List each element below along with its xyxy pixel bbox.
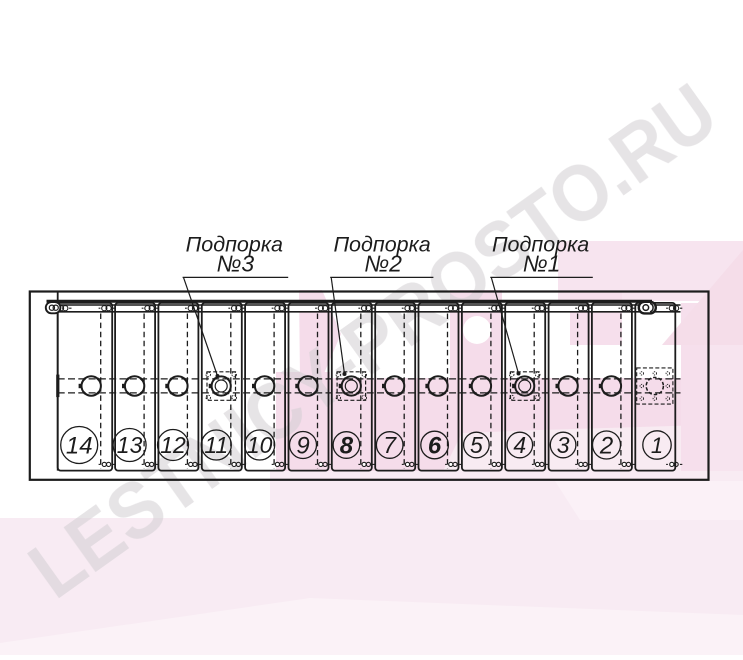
svg-text:№1: №1: [523, 251, 561, 277]
svg-text:11: 11: [204, 432, 228, 458]
svg-text:12: 12: [160, 432, 186, 458]
svg-text:8: 8: [340, 433, 354, 460]
svg-text:13: 13: [117, 432, 143, 458]
svg-text:6: 6: [428, 433, 442, 460]
svg-text:3: 3: [557, 432, 570, 458]
svg-text:7: 7: [383, 432, 397, 458]
svg-text:4: 4: [513, 432, 526, 458]
svg-text:№3: №3: [216, 251, 254, 277]
svg-text:№2: №2: [364, 251, 402, 277]
svg-text:9: 9: [296, 433, 309, 460]
svg-text:2: 2: [599, 433, 613, 460]
svg-text:10: 10: [247, 432, 273, 458]
svg-text:14: 14: [66, 433, 93, 460]
svg-text:5: 5: [470, 432, 483, 458]
svg-text:1: 1: [651, 433, 663, 458]
